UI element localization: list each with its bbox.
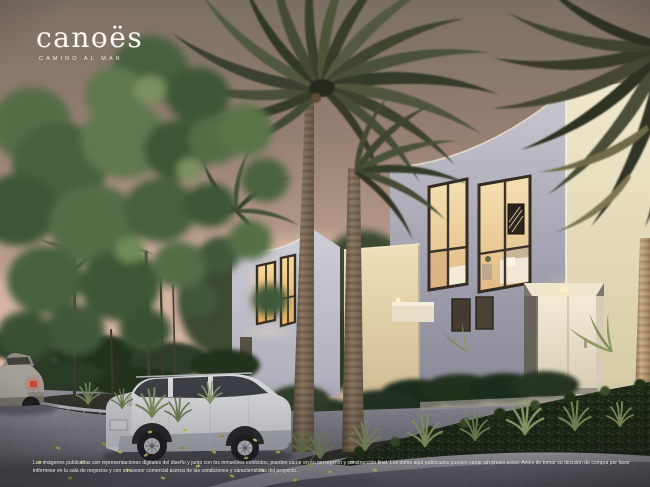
disclaimer-line-2: infórmese en la sala de negocios y con s… — [33, 467, 650, 475]
logo-letter-o: o — [91, 24, 109, 52]
logo-wordmark: canoës — [36, 24, 143, 52]
brand-logo: canoës CAMINO AL MAR — [36, 24, 143, 62]
legal-disclaimer: Las imágenes publicadas son representaci… — [33, 459, 650, 476]
logo-tagline: CAMINO AL MAR — [39, 56, 143, 62]
logo-text-part1: can — [36, 21, 91, 54]
vignette — [0, 0, 650, 487]
disclaimer-line-1: Las imágenes publicadas son representaci… — [33, 459, 650, 467]
logo-text-part3: ës — [109, 21, 143, 54]
scene-svg — [0, 0, 650, 487]
render-canvas: canoës CAMINO AL MAR Las imágenes public… — [0, 0, 650, 487]
logo-o-emblem-icon — [96, 38, 104, 43]
